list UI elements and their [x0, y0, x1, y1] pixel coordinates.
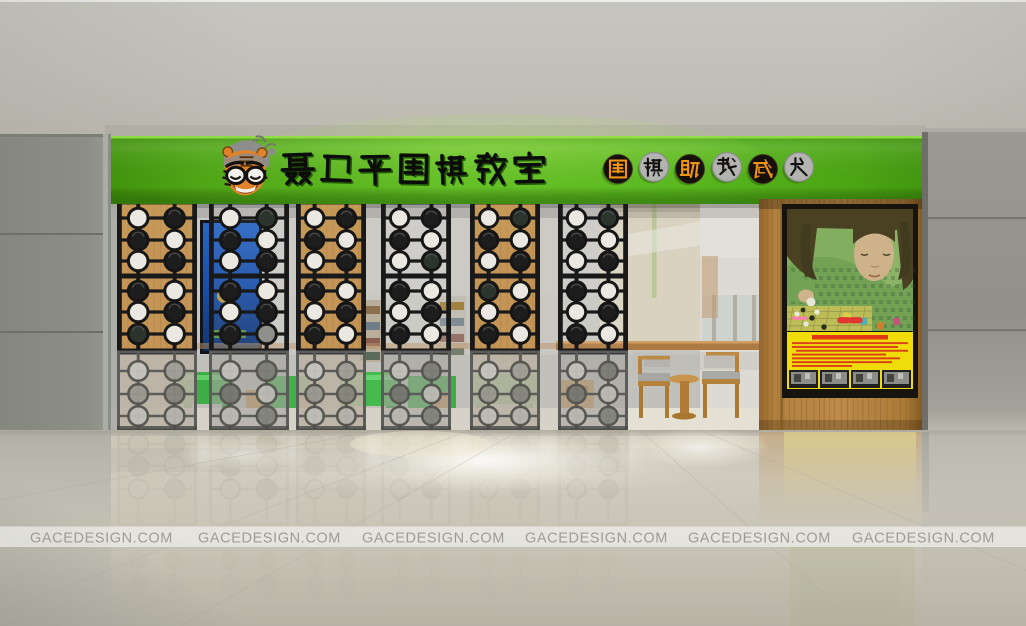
svg-text:GACEDESIGN.COM: GACEDESIGN.COM	[688, 531, 831, 547]
svg-text:GACEDESIGN.COM: GACEDESIGN.COM	[198, 531, 341, 547]
svg-text:GACEDESIGN.COM: GACEDESIGN.COM	[525, 531, 668, 547]
svg-text:GACEDESIGN.COM: GACEDESIGN.COM	[852, 531, 995, 547]
svg-text:GACEDESIGN.COM: GACEDESIGN.COM	[362, 531, 505, 547]
svg-text:GACEDESIGN.COM: GACEDESIGN.COM	[30, 531, 173, 547]
